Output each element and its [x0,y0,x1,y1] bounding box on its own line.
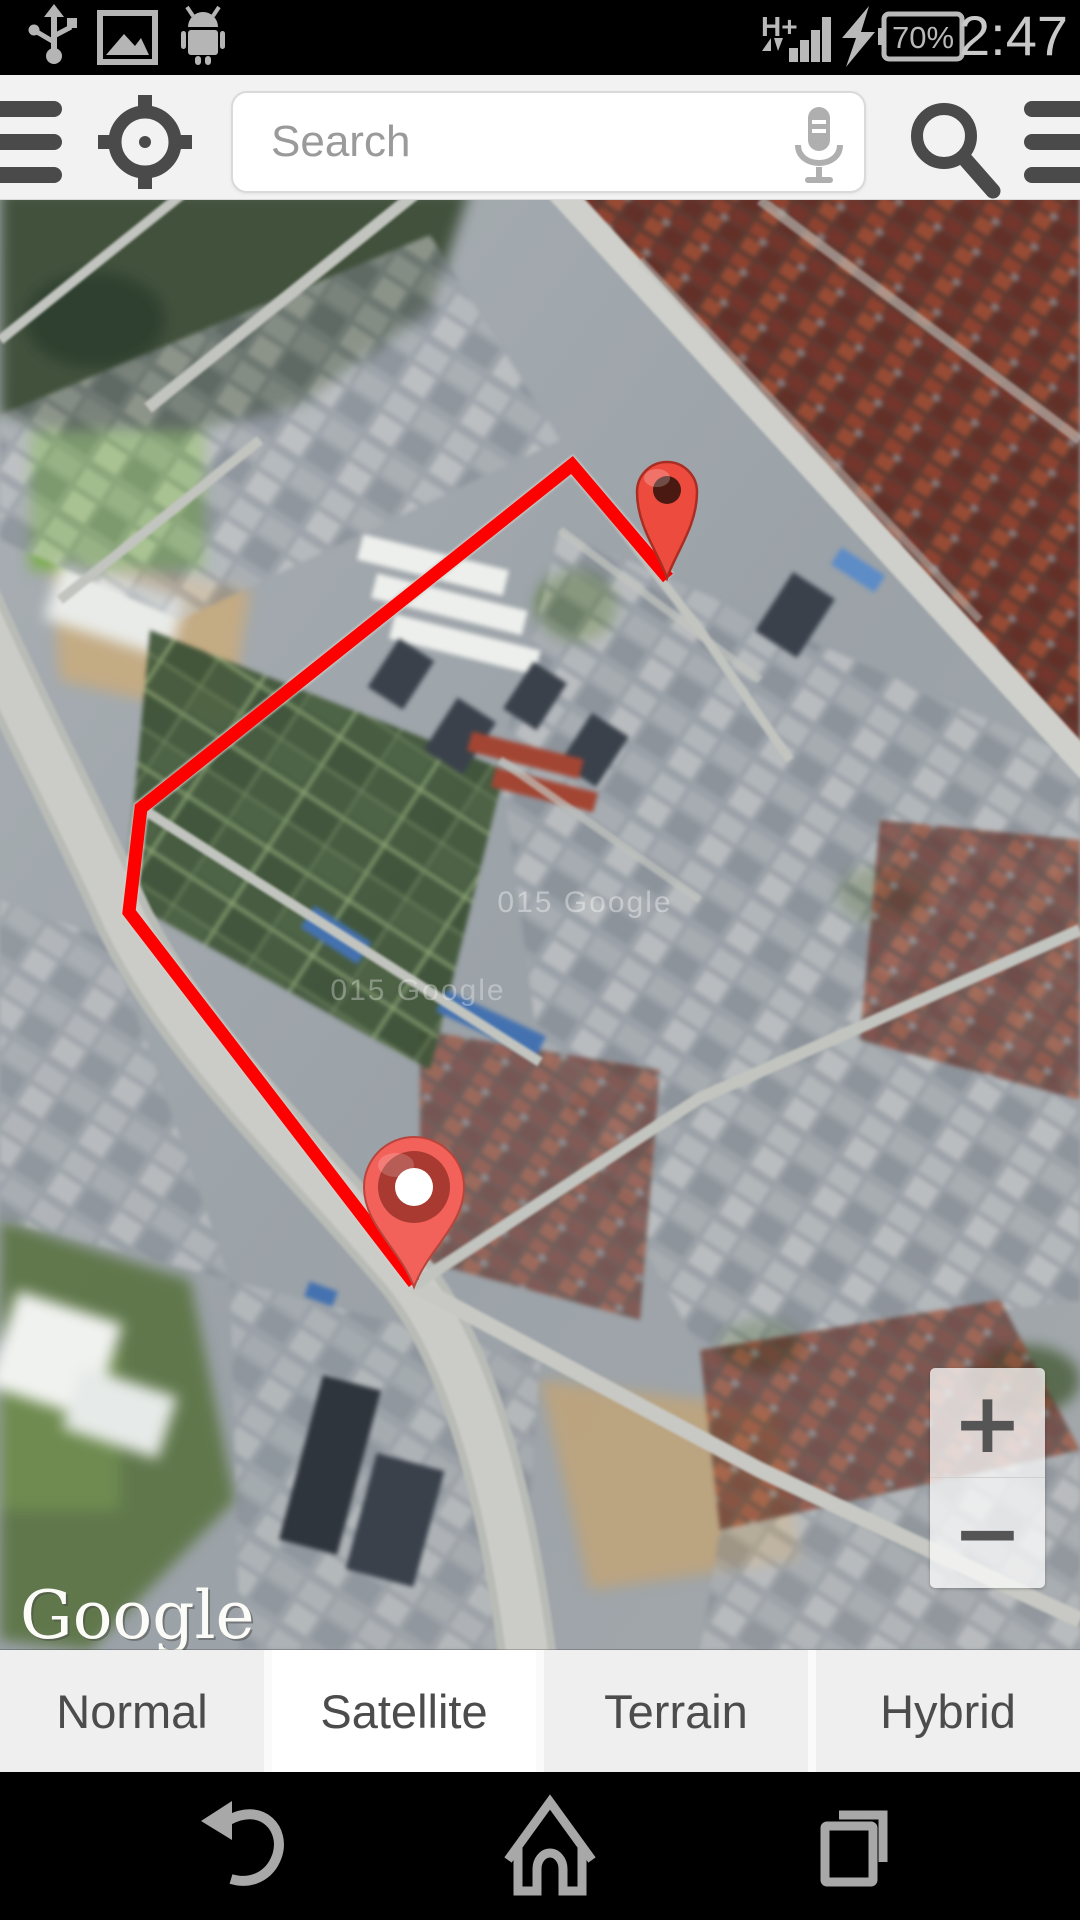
android-nav-bar [0,1772,1080,1920]
map-container: 015 Google 015 Google Google Google [0,200,1080,1650]
charging-bolt-icon [842,6,875,67]
status-bar-icons: H+ 70% 2:47 [0,0,1080,75]
map-type-tab-bar: Normal Satellite Terrain Hybrid [0,1650,1080,1772]
microphone-icon[interactable] [794,105,844,185]
tab-hybrid[interactable]: Hybrid [816,1650,1080,1772]
google-logo: Google Google [20,1577,257,1650]
signal-bars-icon: H+ [761,11,831,62]
home-icon[interactable] [508,1802,592,1891]
imagery-watermark: 015 Google [497,886,672,919]
app-toolbar [0,75,1080,200]
zoom-in-button[interactable]: + [930,1368,1045,1478]
map-surface[interactable]: 015 Google 015 Google Google Google [0,200,1080,1650]
list-menu-icon[interactable] [1012,75,1080,200]
zoom-control: + − [930,1368,1045,1588]
android-icon [181,7,225,65]
tab-terrain[interactable]: Terrain [544,1650,808,1772]
tab-normal[interactable]: Normal [0,1650,264,1772]
search-icon[interactable] [903,97,1005,202]
usb-icon [29,4,78,64]
clock-label: 2:47 [959,4,1068,67]
hamburger-menu-icon[interactable] [0,75,70,200]
search-box [231,91,866,193]
battery-percent-label: 70% [892,20,954,55]
gallery-icon [100,13,155,62]
search-input[interactable] [233,93,864,191]
imagery-watermark: 015 Google [330,974,505,1007]
network-type-label: H+ [761,11,798,42]
battery-icon: 70% [878,14,962,59]
zoom-out-button[interactable]: − [930,1478,1045,1588]
status-bar: H+ 70% 2:47 [0,0,1080,75]
back-icon[interactable] [201,1801,279,1881]
phone-screen: H+ 70% 2:47 [0,0,1080,1920]
gps-locate-icon[interactable] [98,95,192,189]
tab-satellite[interactable]: Satellite [272,1650,536,1772]
recents-icon[interactable] [825,1815,883,1882]
svg-text:Google: Google [20,1577,255,1650]
